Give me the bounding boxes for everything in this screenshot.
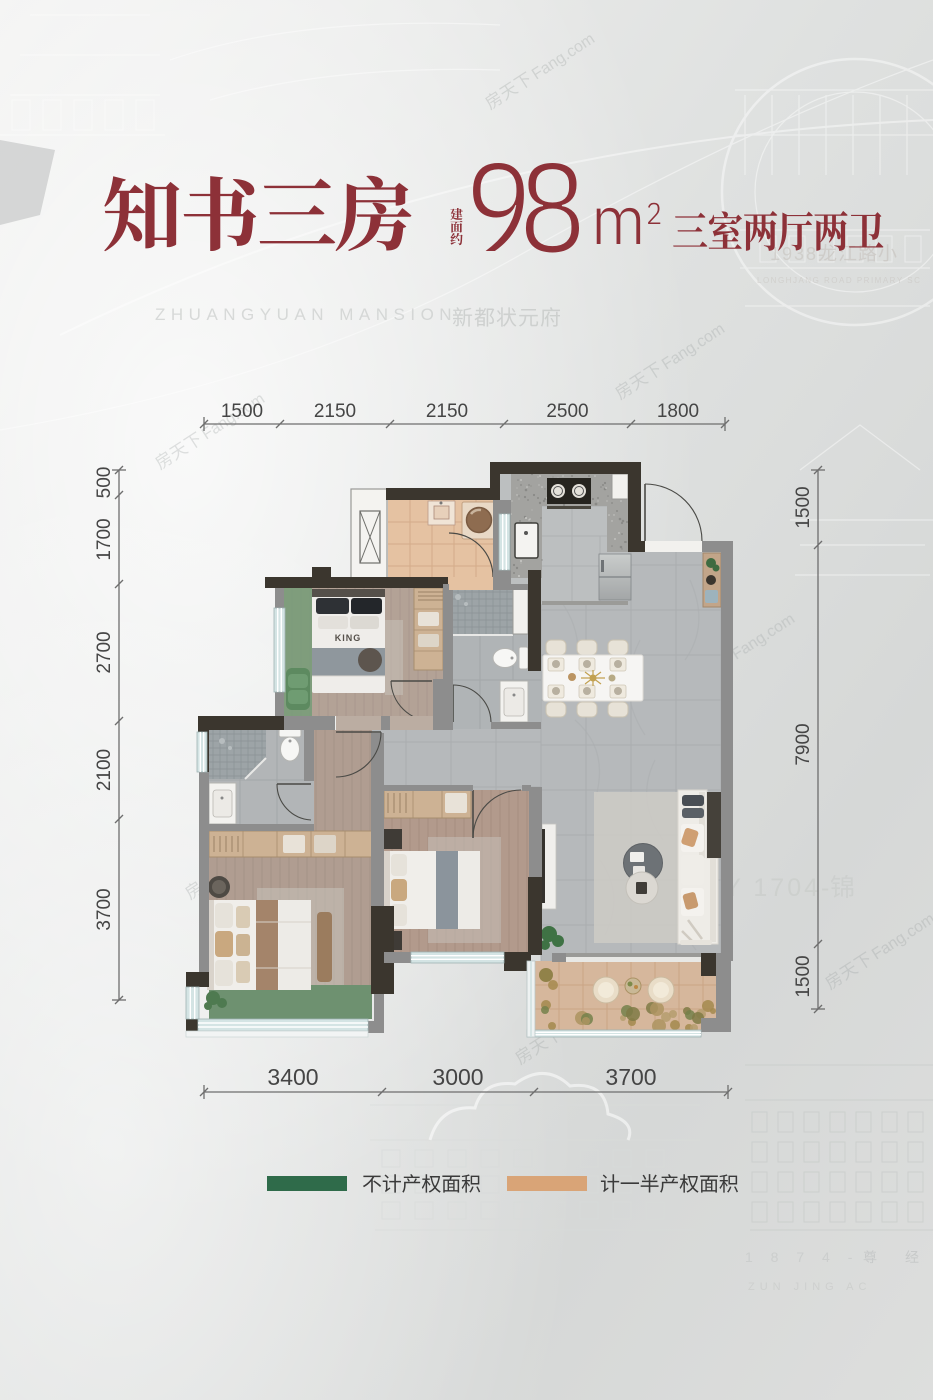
svg-text:3700: 3700 [605, 1064, 656, 1090]
svg-text:2150: 2150 [314, 401, 356, 422]
svg-text:KING: KING [335, 633, 362, 643]
svg-text:1500: 1500 [793, 486, 814, 528]
svg-text:3700: 3700 [94, 888, 115, 930]
svg-text:1700: 1700 [94, 518, 115, 560]
svg-text:1500: 1500 [793, 955, 814, 997]
svg-text:ZUN JING AC: ZUN JING AC [748, 1281, 871, 1293]
svg-text:2700: 2700 [94, 631, 115, 673]
svg-text:2100: 2100 [94, 749, 115, 791]
svg-text:1500: 1500 [221, 401, 263, 422]
svg-text:ZHUANGYUAN MANSION: ZHUANGYUAN MANSION [155, 305, 457, 324]
svg-text:500: 500 [94, 467, 115, 499]
svg-text:1 8 7 4 -: 1 8 7 4 - [745, 1249, 859, 1265]
svg-text:7900: 7900 [793, 723, 814, 765]
svg-text:1800: 1800 [657, 401, 699, 422]
svg-text:3000: 3000 [432, 1064, 483, 1090]
svg-text:LONGHJANG ROAD PRIMARY SC: LONGHJANG ROAD PRIMARY SC [757, 276, 921, 285]
svg-text:2150: 2150 [426, 401, 468, 422]
svg-text:2500: 2500 [546, 401, 588, 422]
svg-text:3400: 3400 [267, 1064, 318, 1090]
